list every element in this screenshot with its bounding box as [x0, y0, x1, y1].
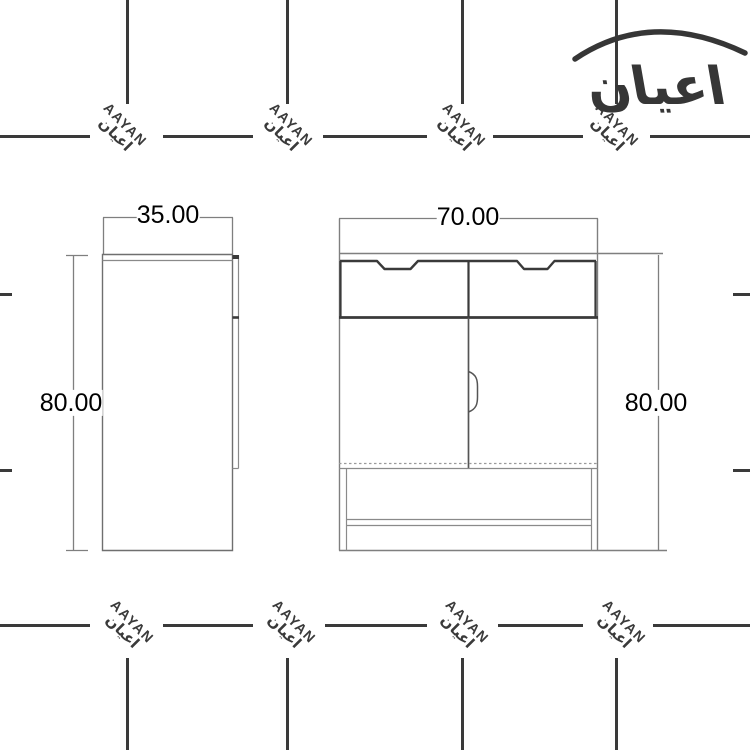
dim-front-width-label: 70.00	[437, 204, 500, 230]
dim-side-width-label: 35.00	[137, 202, 200, 228]
drawer-fronts	[339, 261, 598, 318]
logo-text: اعيان	[581, 56, 730, 116]
front-view	[339, 219, 667, 551]
logo-swoosh-icon	[575, 32, 745, 59]
brand-logo: اعيان	[556, 14, 750, 116]
side-view	[66, 218, 239, 552]
door-handle	[469, 372, 478, 413]
drawing-canvas: AAYAN اعيان AAYAN اعيان AAYAN اعيان AAYA…	[0, 0, 750, 750]
dim-front-height-label: 80.00	[625, 390, 688, 416]
doors	[339, 318, 598, 469]
base-shelf-section	[347, 469, 592, 551]
side-body-outline	[103, 255, 233, 551]
side-front-overlay	[233, 255, 240, 469]
dim-side-height-label: 80.00	[40, 390, 103, 416]
